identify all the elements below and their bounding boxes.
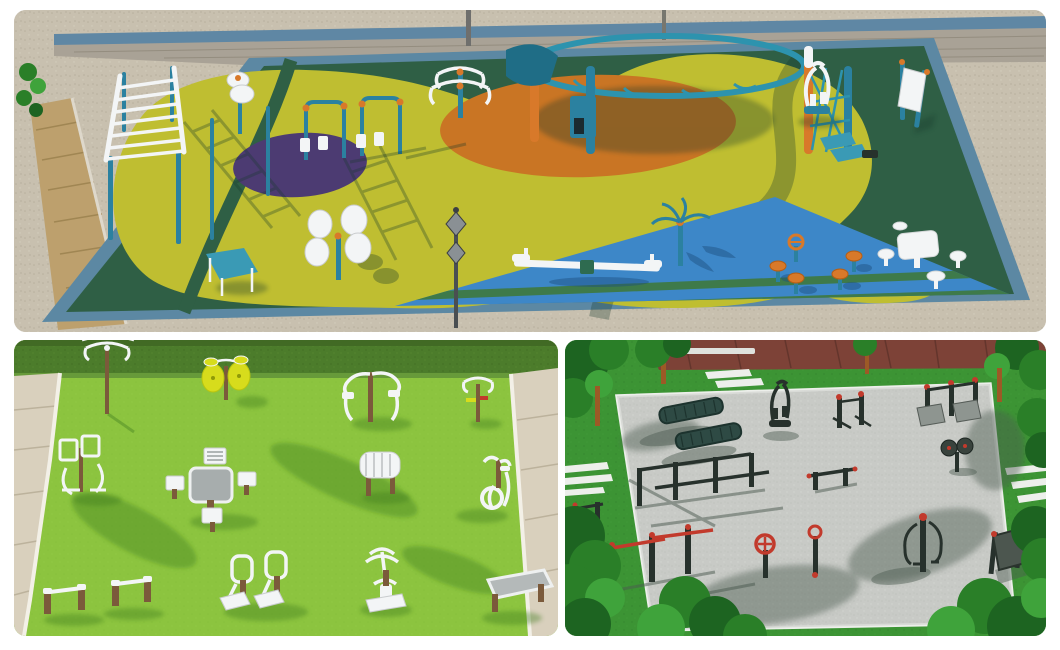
screenshot-background	[0, 0, 1060, 650]
lawn-gym-scene	[14, 340, 558, 636]
shade-sail	[506, 44, 558, 86]
render-lawn-gym	[14, 340, 558, 636]
render-aerial-playground	[14, 10, 1046, 332]
pole-behind-wall	[466, 10, 471, 46]
aerial-playground-scene	[14, 10, 1046, 332]
render-street-workout	[565, 340, 1046, 636]
top-slat-bench	[685, 348, 755, 354]
street-workout-scene	[565, 340, 1046, 636]
